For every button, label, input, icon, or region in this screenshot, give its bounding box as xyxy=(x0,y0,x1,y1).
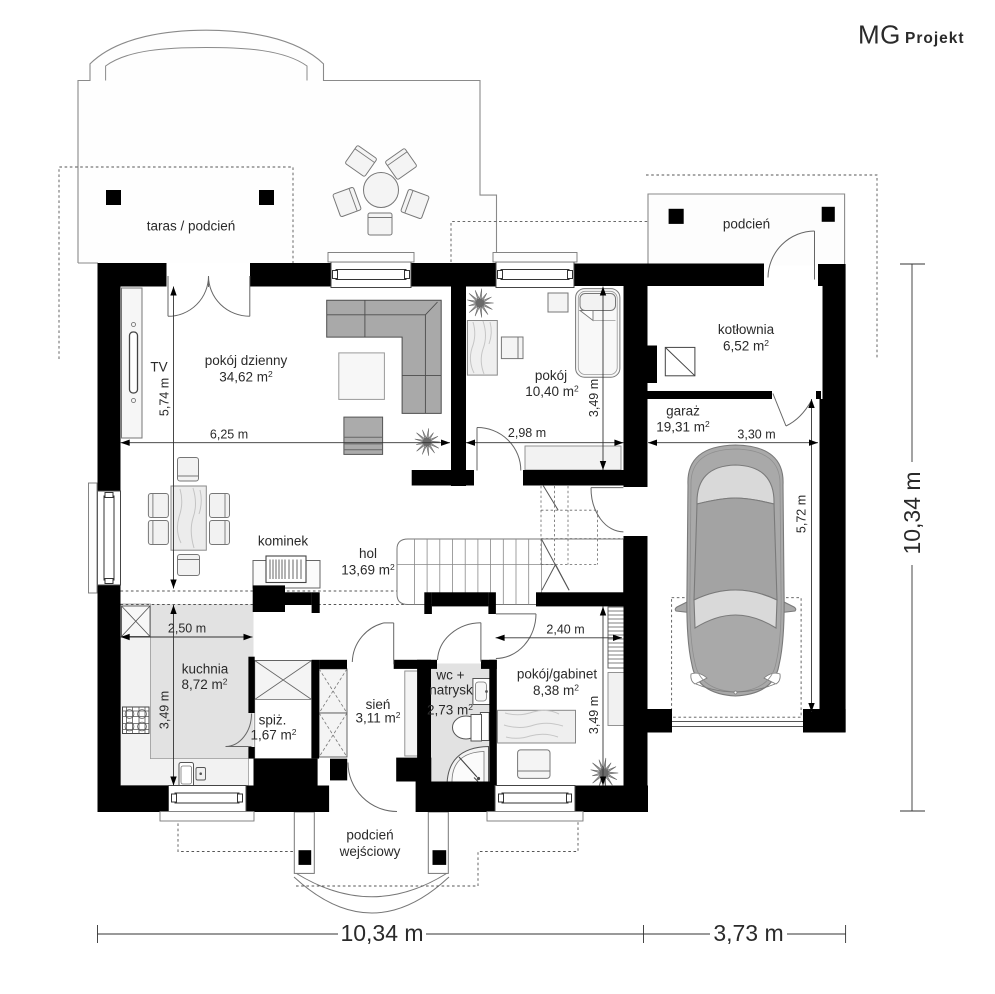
svg-text:pokój/gabinet: pokój/gabinet xyxy=(517,667,598,682)
svg-text:podcień: podcień xyxy=(723,217,770,232)
svg-text:2,40 m: 2,40 m xyxy=(546,622,584,636)
svg-text:6,52 m2: 6,52 m2 xyxy=(723,338,769,354)
svg-text:8,38 m2: 8,38 m2 xyxy=(533,683,579,699)
svg-text:1,67 m2: 1,67 m2 xyxy=(250,727,296,743)
svg-text:pokój: pokój xyxy=(535,368,567,383)
svg-text:3,11 m2: 3,11 m2 xyxy=(355,710,400,726)
svg-text:spiż.: spiż. xyxy=(259,713,287,728)
svg-text:13,69 m2: 13,69 m2 xyxy=(341,562,395,578)
svg-text:3,49 m: 3,49 m xyxy=(587,379,601,417)
svg-text:hol: hol xyxy=(359,546,377,561)
svg-text:garaż: garaż xyxy=(666,404,700,419)
svg-text:taras / podcień: taras / podcień xyxy=(147,219,236,234)
svg-text:3,73 m: 3,73 m xyxy=(713,920,783,946)
svg-text:3,30 m: 3,30 m xyxy=(737,428,775,442)
svg-text:5,74 m: 5,74 m xyxy=(158,378,172,416)
svg-text:10,34 m: 10,34 m xyxy=(899,471,925,554)
svg-text:3,49 m: 3,49 m xyxy=(158,691,172,729)
svg-text:10,40 m2: 10,40 m2 xyxy=(525,384,579,400)
svg-text:MG: MG xyxy=(858,20,901,50)
svg-text:19,31 m2: 19,31 m2 xyxy=(656,419,710,435)
svg-text:Projekt: Projekt xyxy=(905,30,965,47)
svg-text:3,49 m: 3,49 m xyxy=(587,696,601,734)
svg-text:10,34 m: 10,34 m xyxy=(340,920,423,946)
svg-text:natrysk: natrysk xyxy=(429,683,473,698)
svg-text:2,50 m: 2,50 m xyxy=(168,622,206,636)
svg-text:wc +: wc + xyxy=(435,668,464,683)
svg-text:34,62 m2: 34,62 m2 xyxy=(219,369,273,385)
svg-text:6,25 m: 6,25 m xyxy=(210,428,248,442)
svg-text:pokój dzienny: pokój dzienny xyxy=(205,353,288,368)
svg-text:kotłownia: kotłownia xyxy=(718,322,775,337)
svg-text:podcień: podcień xyxy=(346,828,393,843)
svg-text:2,73 m2: 2,73 m2 xyxy=(427,702,473,718)
svg-text:kominek: kominek xyxy=(258,534,309,549)
svg-text:2,98 m: 2,98 m xyxy=(508,426,546,440)
svg-text:wejściowy: wejściowy xyxy=(339,844,401,859)
svg-text:5,72 m: 5,72 m xyxy=(795,495,809,533)
svg-text:8,72 m2: 8,72 m2 xyxy=(181,677,227,693)
svg-text:TV: TV xyxy=(150,360,167,375)
svg-text:kuchnia: kuchnia xyxy=(182,662,229,677)
